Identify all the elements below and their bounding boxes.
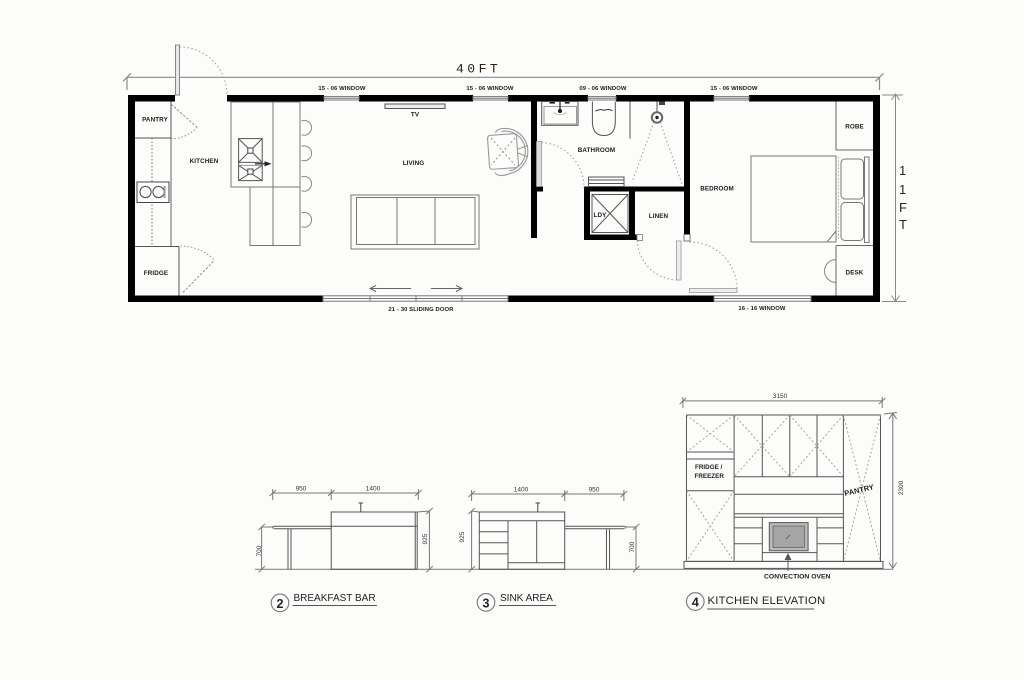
svg-text:1400: 1400 — [514, 487, 529, 494]
svg-text:1: 1 — [899, 182, 906, 197]
svg-text:FREEZER: FREEZER — [695, 473, 725, 480]
svg-text:LINEN: LINEN — [649, 213, 669, 220]
svg-text:16 - 16 WINDOW: 16 - 16 WINDOW — [738, 306, 786, 312]
svg-text:950: 950 — [589, 487, 600, 494]
svg-text:3150: 3150 — [773, 393, 788, 400]
svg-text:TV: TV — [411, 112, 420, 119]
svg-text:2300: 2300 — [898, 480, 905, 495]
svg-text:LDY: LDY — [594, 212, 608, 219]
svg-text:CONVECTION OVEN: CONVECTION OVEN — [764, 574, 831, 581]
svg-text:15 - 06 WINDOW: 15 - 06 WINDOW — [710, 86, 758, 92]
svg-text:KITCHEN: KITCHEN — [190, 158, 219, 165]
svg-text:15 - 06 WINDOW: 15 - 06 WINDOW — [466, 86, 514, 92]
svg-text:700: 700 — [629, 541, 636, 552]
svg-text:KITCHEN ELEVATION: KITCHEN ELEVATION — [708, 595, 826, 607]
svg-text:1: 1 — [899, 163, 906, 178]
svg-text:700: 700 — [256, 545, 263, 556]
svg-text:BEDROOM: BEDROOM — [700, 186, 734, 193]
svg-text:BATHROOM: BATHROOM — [578, 147, 615, 154]
svg-text:2: 2 — [277, 597, 284, 611]
svg-text:3: 3 — [483, 597, 490, 611]
svg-text:F: F — [899, 200, 907, 215]
svg-text:PANTRY: PANTRY — [142, 117, 168, 124]
svg-text:925: 925 — [422, 533, 429, 544]
svg-text:09 - 06 WINDOW: 09 - 06 WINDOW — [579, 86, 627, 92]
svg-text:BREAKFAST BAR: BREAKFAST BAR — [294, 593, 376, 604]
svg-text:21 - 30 SLIDING DOOR: 21 - 30 SLIDING DOOR — [388, 307, 454, 313]
svg-text:DESK: DESK — [846, 270, 864, 277]
svg-text:950: 950 — [296, 486, 307, 493]
svg-text:15 - 06 WINDOW: 15 - 06 WINDOW — [318, 86, 366, 92]
svg-text:LIVING: LIVING — [403, 160, 425, 167]
svg-text:FRIDGE: FRIDGE — [144, 270, 168, 277]
svg-text:4: 4 — [692, 596, 699, 610]
svg-text:925: 925 — [459, 531, 466, 542]
svg-text:ROBE: ROBE — [845, 124, 864, 131]
svg-text:40FT: 40FT — [456, 62, 501, 77]
svg-text:FRIDGE /: FRIDGE / — [695, 464, 723, 471]
svg-text:T: T — [899, 217, 907, 232]
svg-text:1400: 1400 — [366, 486, 381, 493]
svg-text:SINK AREA: SINK AREA — [500, 593, 553, 604]
